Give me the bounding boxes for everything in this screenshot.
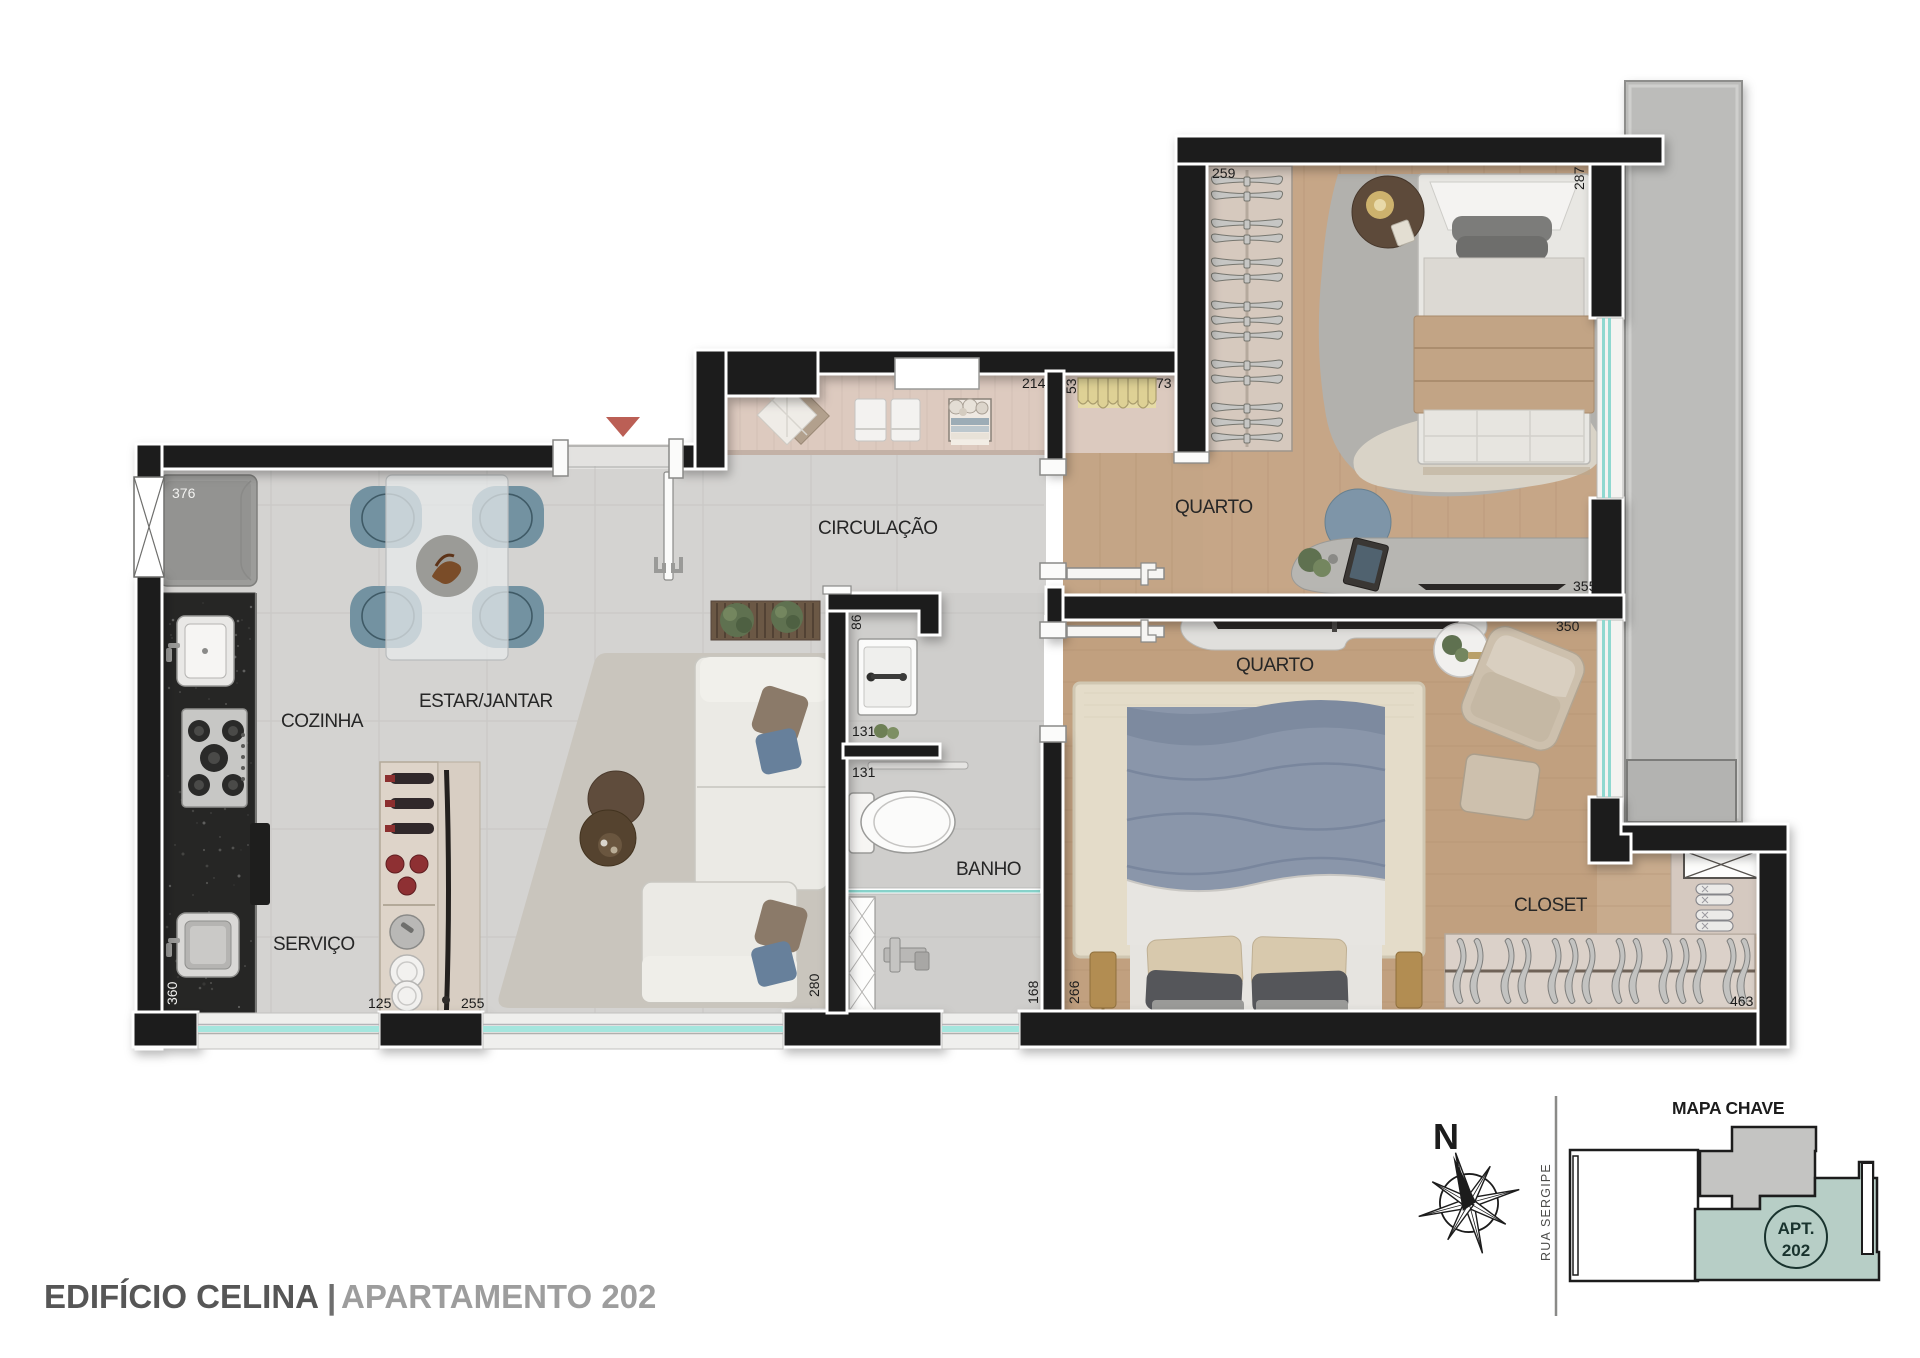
svg-text:214: 214 [1022, 375, 1046, 391]
svg-text:73: 73 [1156, 375, 1172, 391]
svg-text:355: 355 [1573, 578, 1597, 594]
svg-text:376: 376 [172, 485, 196, 501]
svg-text:APT.: APT. [1778, 1219, 1815, 1238]
svg-text:CLOSET: CLOSET [1514, 895, 1588, 916]
svg-text:CIRCULAÇÃO: CIRCULAÇÃO [818, 517, 938, 539]
svg-text:255: 255 [461, 995, 485, 1011]
svg-text:202: 202 [1782, 1241, 1810, 1260]
svg-text:BANHO: BANHO [956, 859, 1021, 880]
svg-text:MAPA CHAVE: MAPA CHAVE [1672, 1098, 1784, 1118]
svg-text:131: 131 [852, 764, 876, 780]
svg-text:N: N [1433, 1116, 1459, 1157]
svg-text:259: 259 [1212, 165, 1236, 181]
svg-text:EDIFÍCIO CELINA: EDIFÍCIO CELINA [44, 1278, 319, 1315]
svg-text:APARTAMENTO 202: APARTAMENTO 202 [341, 1278, 656, 1315]
svg-text:360: 360 [164, 981, 180, 1005]
svg-text:350: 350 [1556, 618, 1580, 634]
svg-text:168: 168 [1025, 980, 1041, 1004]
svg-text:QUARTO: QUARTO [1175, 497, 1253, 518]
svg-text:280: 280 [806, 973, 822, 997]
svg-text:125: 125 [368, 995, 392, 1011]
svg-text:RUA SERGIPE: RUA SERGIPE [1539, 1163, 1553, 1261]
svg-text:|: | [327, 1278, 336, 1315]
svg-text:COZINHA: COZINHA [281, 711, 364, 732]
svg-text:ESTAR/JANTAR: ESTAR/JANTAR [419, 691, 553, 712]
svg-text:266: 266 [1066, 980, 1082, 1004]
svg-text:53: 53 [1063, 378, 1079, 394]
svg-text:131: 131 [852, 723, 876, 739]
svg-text:463: 463 [1730, 993, 1754, 1009]
svg-text:287: 287 [1571, 166, 1587, 190]
svg-text:86: 86 [848, 614, 864, 630]
svg-text:QUARTO: QUARTO [1236, 655, 1314, 676]
svg-text:SERVIÇO: SERVIÇO [273, 934, 355, 955]
